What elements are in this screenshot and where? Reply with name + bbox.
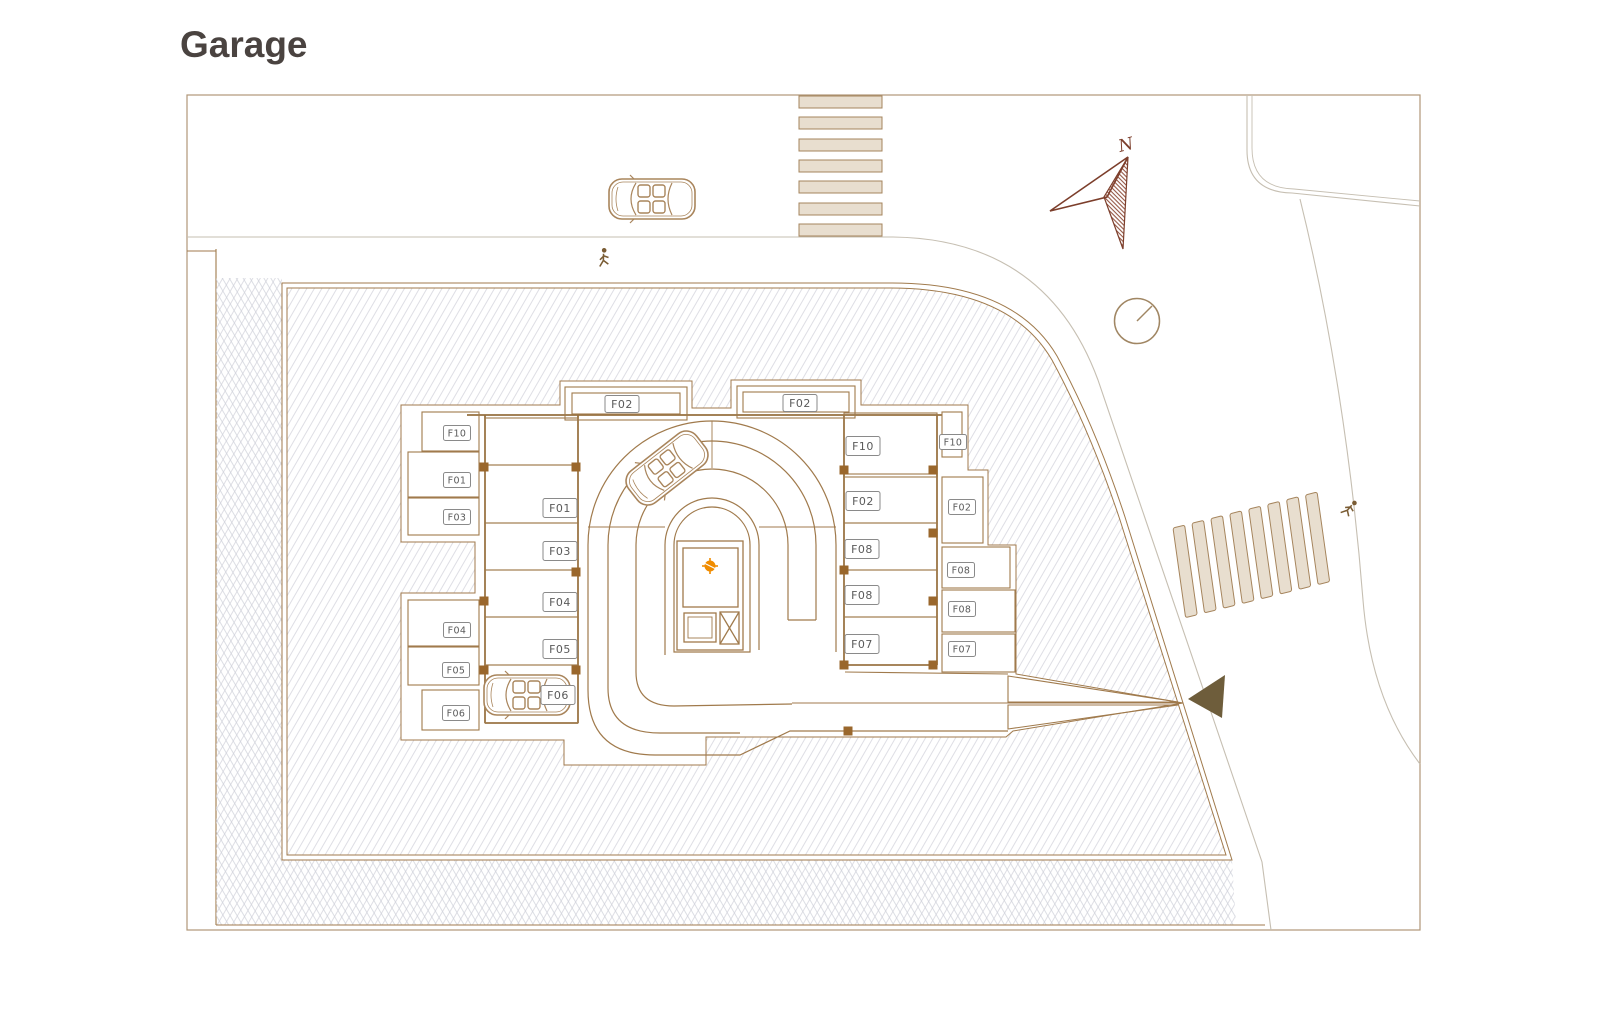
parking-label: F04: [444, 623, 471, 638]
crosswalk-top: [799, 96, 882, 236]
svg-text:F06: F06: [547, 689, 569, 702]
svg-text:F10: F10: [448, 429, 467, 440]
car-icon: [609, 175, 695, 223]
parking-label: F03: [444, 510, 471, 525]
svg-text:F10: F10: [852, 440, 874, 453]
parking-label: F03: [543, 542, 577, 561]
svg-text:F04: F04: [549, 596, 571, 609]
svg-text:F02: F02: [953, 503, 972, 514]
parking-label: F01: [444, 473, 471, 488]
parking-label: F05: [543, 640, 577, 659]
parking-label: F10: [940, 435, 967, 450]
parking-label: F02: [846, 492, 880, 511]
svg-text:F08: F08: [953, 605, 972, 616]
svg-text:F03: F03: [549, 545, 571, 558]
svg-text:F04: F04: [448, 626, 467, 637]
svg-text:F01: F01: [448, 476, 467, 487]
parking-label: F08: [845, 540, 879, 559]
svg-text:F10: F10: [944, 438, 963, 449]
parking-label: F08: [948, 563, 975, 578]
parking-label: F06: [443, 706, 470, 721]
parking-label: F08: [845, 586, 879, 605]
parking-label: F04: [543, 593, 577, 612]
svg-text:F07: F07: [851, 638, 873, 651]
svg-text:F08: F08: [851, 589, 873, 602]
svg-text:F06: F06: [447, 709, 466, 720]
svg-text:F08: F08: [952, 566, 971, 577]
garage-site-plan: F10 F01 F03 F04 F05 F06 F01 F03 F04 F05 …: [0, 0, 1620, 1021]
parking-label: F06: [541, 686, 575, 705]
svg-text:F05: F05: [549, 643, 571, 656]
parking-label: F02: [783, 395, 817, 412]
parking-label: F10: [846, 437, 880, 456]
parking-label: F07: [949, 642, 976, 657]
parking-label: F02: [949, 500, 976, 515]
parking-label: F07: [845, 635, 879, 654]
svg-text:F02: F02: [852, 495, 874, 508]
svg-text:F08: F08: [851, 543, 873, 556]
parking-label: F08: [949, 602, 976, 617]
parking-label: F02: [605, 396, 639, 413]
svg-text:F03: F03: [448, 513, 467, 524]
parking-label: F10: [444, 426, 471, 441]
parking-label: F01: [543, 499, 577, 518]
svg-text:F02: F02: [611, 398, 633, 411]
svg-text:F01: F01: [549, 502, 571, 515]
svg-text:F02: F02: [789, 397, 811, 410]
svg-text:F05: F05: [447, 666, 466, 677]
svg-text:F07: F07: [953, 645, 972, 656]
parking-label: F05: [443, 663, 470, 678]
